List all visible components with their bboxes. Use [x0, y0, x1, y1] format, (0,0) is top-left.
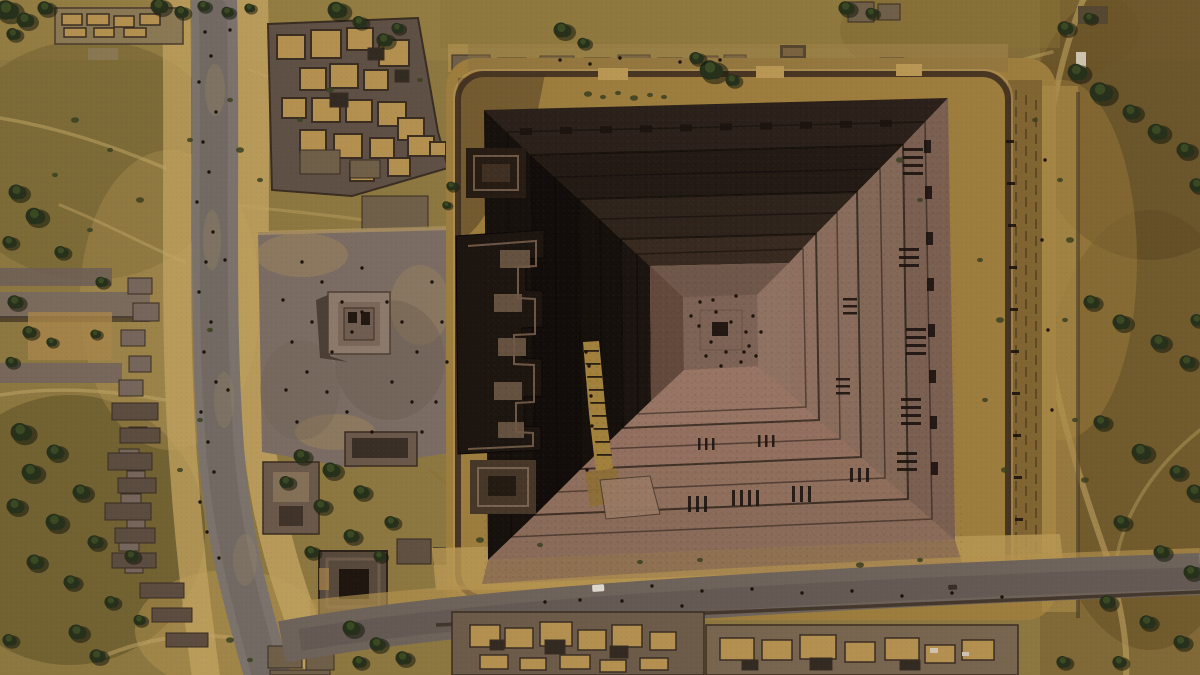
scene-svg: [0, 0, 1200, 675]
aerial-photo-teotihuacan: [0, 0, 1200, 675]
photo-grain: [0, 0, 1200, 675]
